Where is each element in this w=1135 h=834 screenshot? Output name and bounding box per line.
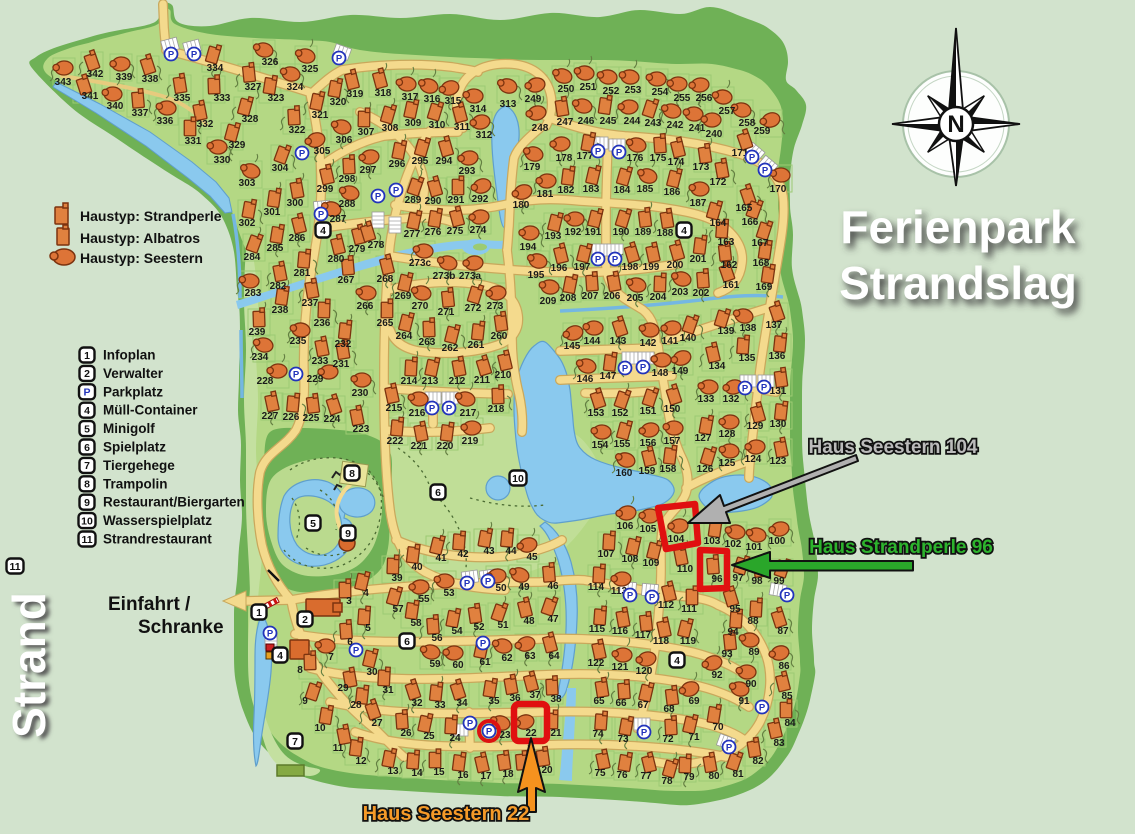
svg-text:257: 257 [719,106,736,117]
svg-text:41: 41 [435,553,447,564]
svg-text:86: 86 [778,661,790,672]
svg-text:P: P [429,404,436,415]
svg-text:157: 157 [664,436,681,447]
svg-text:264: 264 [396,331,413,342]
svg-text:75: 75 [594,768,606,779]
svg-text:176: 176 [627,153,644,164]
svg-text:91: 91 [738,696,750,707]
svg-text:165: 165 [736,203,753,214]
svg-text:61: 61 [479,657,491,668]
svg-text:52: 52 [473,622,485,633]
svg-text:119: 119 [680,636,697,647]
svg-text:234: 234 [252,352,269,363]
svg-text:P: P [749,153,756,164]
svg-text:Infoplan: Infoplan [103,348,156,363]
svg-text:109: 109 [643,558,660,569]
svg-text:P: P [393,186,400,197]
svg-text:111: 111 [681,604,697,615]
svg-text:4: 4 [277,650,283,662]
svg-text:31: 31 [382,685,394,696]
svg-text:212: 212 [449,376,466,387]
svg-text:295: 295 [412,156,429,167]
svg-text:8: 8 [349,468,355,480]
svg-text:60: 60 [452,660,464,671]
svg-text:116: 116 [612,626,629,637]
svg-text:326: 326 [262,57,279,68]
svg-text:6: 6 [404,636,410,648]
svg-text:80: 80 [708,771,720,782]
svg-text:150: 150 [664,404,681,415]
svg-text:Einfahrt /: Einfahrt / [108,594,191,615]
svg-text:293: 293 [459,166,476,177]
svg-text:220: 220 [437,441,454,452]
svg-text:280: 280 [328,254,345,265]
svg-text:159: 159 [639,466,656,477]
svg-text:180: 180 [513,200,530,211]
svg-text:P: P [622,364,629,375]
svg-text:94: 94 [727,627,739,638]
svg-text:328: 328 [242,114,259,125]
svg-text:P: P [336,54,343,65]
svg-text:88: 88 [747,616,759,627]
svg-text:218: 218 [488,404,505,415]
svg-text:174: 174 [668,157,685,168]
svg-text:P: P [641,728,648,739]
svg-text:304: 304 [272,163,289,174]
svg-text:56: 56 [431,633,443,644]
svg-text:170: 170 [770,184,787,195]
svg-text:1: 1 [84,350,90,362]
svg-text:183: 183 [583,184,600,195]
svg-text:310: 310 [429,120,446,131]
svg-text:11: 11 [9,561,20,573]
svg-text:27: 27 [371,718,383,729]
svg-text:273b: 273b [433,271,456,282]
svg-text:7: 7 [292,736,298,748]
svg-text:305: 305 [314,146,331,157]
svg-text:259: 259 [754,126,771,137]
svg-text:P: P [353,646,360,657]
svg-text:49: 49 [518,582,530,593]
svg-text:256: 256 [696,93,713,104]
svg-text:13: 13 [387,766,399,777]
svg-text:222: 222 [387,436,404,447]
svg-text:70: 70 [712,722,724,733]
svg-text:250: 250 [558,84,575,95]
svg-text:290: 290 [425,196,442,207]
svg-text:10: 10 [512,473,524,485]
svg-text:106: 106 [617,521,634,532]
svg-text:P: P [83,387,90,399]
svg-text:48: 48 [523,616,535,627]
svg-text:146: 146 [577,374,594,385]
svg-text:P: P [726,743,733,754]
svg-text:186: 186 [664,187,681,198]
svg-text:225: 225 [303,413,320,424]
svg-text:Haustyp: Seestern: Haustyp: Seestern [80,250,203,266]
svg-text:35: 35 [488,696,500,707]
svg-text:26: 26 [400,728,412,739]
svg-text:76: 76 [616,770,628,781]
svg-text:Müll-Container: Müll-Container [103,403,198,418]
svg-text:282: 282 [270,281,287,292]
svg-text:Spielplatz: Spielplatz [103,440,166,455]
svg-text:11: 11 [333,743,344,754]
svg-text:275: 275 [447,226,464,237]
svg-text:187: 187 [690,198,707,209]
svg-text:194: 194 [520,242,537,253]
svg-text:45: 45 [526,552,538,563]
svg-text:136: 136 [769,351,786,362]
svg-text:291: 291 [448,195,465,206]
svg-text:284: 284 [244,252,261,263]
svg-text:232: 232 [335,339,352,350]
svg-text:266: 266 [357,301,374,312]
svg-text:307: 307 [358,127,375,138]
svg-text:Minigolf: Minigolf [103,421,155,436]
svg-text:272: 272 [465,303,482,314]
svg-text:337: 337 [132,108,149,119]
svg-text:289: 289 [405,195,422,206]
svg-text:154: 154 [592,440,609,451]
svg-text:92: 92 [711,670,723,681]
svg-text:341: 341 [82,91,99,102]
svg-text:118: 118 [653,636,670,647]
svg-text:325: 325 [302,64,319,75]
svg-text:18: 18 [502,769,514,780]
svg-text:211: 211 [474,375,491,386]
svg-text:277: 277 [404,229,421,240]
svg-text:267: 267 [338,275,355,286]
svg-text:117: 117 [635,630,652,641]
svg-text:54: 54 [451,626,463,637]
svg-text:5: 5 [365,623,371,634]
svg-text:276: 276 [425,227,442,238]
svg-text:90: 90 [745,679,757,690]
svg-text:320: 320 [330,97,347,108]
svg-text:189: 189 [635,227,652,238]
svg-text:130: 130 [770,419,787,430]
svg-text:Verwalter: Verwalter [103,366,164,381]
svg-text:233: 233 [312,356,329,367]
svg-text:Strandslag: Strandslag [839,257,1077,309]
svg-text:21: 21 [550,728,562,739]
svg-text:P: P [595,255,602,266]
svg-text:85: 85 [781,691,793,702]
svg-text:285: 285 [267,243,284,254]
svg-text:273: 273 [487,301,504,312]
svg-text:336: 336 [157,116,174,127]
svg-text:298: 298 [339,174,356,185]
svg-text:190: 190 [613,227,630,238]
svg-text:14: 14 [411,768,423,779]
svg-text:184: 184 [614,185,631,196]
svg-text:239: 239 [249,327,266,338]
svg-text:236: 236 [314,318,331,329]
svg-text:331: 331 [185,136,202,147]
svg-text:84: 84 [784,718,796,729]
svg-text:73: 73 [617,734,629,745]
svg-text:287: 287 [330,214,347,225]
svg-text:121: 121 [612,662,629,673]
svg-text:334: 334 [207,63,224,74]
svg-text:209: 209 [540,296,557,307]
svg-text:278: 278 [368,240,385,251]
svg-text:8: 8 [84,479,90,491]
svg-text:243: 243 [645,118,662,129]
svg-text:330: 330 [214,155,231,166]
svg-text:P: P [784,591,791,602]
svg-text:327: 327 [245,82,262,93]
svg-text:110: 110 [677,564,694,575]
svg-text:143: 143 [610,336,627,347]
svg-text:72: 72 [662,734,674,745]
svg-text:108: 108 [622,554,639,565]
svg-text:Wasserspielplatz: Wasserspielplatz [103,513,212,528]
svg-text:78: 78 [661,776,673,787]
svg-text:Strandrestaurant: Strandrestaurant [103,532,212,547]
svg-text:12: 12 [355,756,367,767]
svg-text:62: 62 [501,653,513,664]
svg-text:2: 2 [302,614,308,626]
svg-text:34: 34 [456,698,468,709]
svg-text:144: 144 [584,336,601,347]
svg-text:Strand: Strand [3,592,55,738]
svg-text:261: 261 [468,340,485,351]
svg-text:65: 65 [593,696,605,707]
svg-text:57: 57 [392,604,404,615]
svg-text:163: 163 [718,237,735,248]
svg-text:Tiergehege: Tiergehege [103,458,175,473]
svg-text:192: 192 [565,227,582,238]
svg-text:97: 97 [732,573,744,584]
svg-text:Restaurant/Biergarten: Restaurant/Biergarten [103,495,245,510]
svg-text:312: 312 [476,130,493,141]
svg-text:269: 269 [395,291,412,302]
svg-text:4: 4 [320,225,326,237]
svg-text:247: 247 [557,117,574,128]
svg-text:10: 10 [81,515,93,527]
svg-text:338: 338 [142,74,159,85]
svg-text:179: 179 [524,162,541,173]
svg-text:306: 306 [336,135,353,146]
svg-text:230: 230 [352,388,369,399]
svg-text:38: 38 [550,694,562,705]
svg-text:64: 64 [548,651,560,662]
svg-text:79: 79 [683,772,695,783]
svg-text:145: 145 [564,341,581,352]
svg-text:164: 164 [710,218,727,229]
svg-text:273a: 273a [459,271,482,282]
svg-text:316: 316 [424,94,441,105]
svg-text:242: 242 [667,120,684,131]
svg-text:262: 262 [442,343,459,354]
svg-text:213: 213 [422,376,439,387]
svg-text:169: 169 [756,282,773,293]
svg-text:253: 253 [625,85,642,96]
svg-text:P: P [485,577,492,588]
svg-text:223: 223 [353,424,370,435]
svg-text:221: 221 [411,441,428,452]
svg-text:172: 172 [710,177,727,188]
svg-text:251: 251 [580,82,597,93]
svg-text:123: 123 [770,456,787,467]
svg-text:P: P [168,50,175,61]
svg-text:105: 105 [640,524,657,535]
svg-text:53: 53 [443,588,455,599]
svg-text:274: 274 [470,225,487,236]
svg-text:15: 15 [433,767,445,778]
svg-text:162: 162 [721,260,738,271]
svg-text:4: 4 [681,225,687,237]
svg-text:10: 10 [314,723,326,734]
svg-text:263: 263 [419,337,436,348]
svg-text:185: 185 [637,184,654,195]
svg-text:47: 47 [547,614,559,625]
svg-text:245: 245 [600,116,617,127]
svg-text:58: 58 [410,618,422,629]
svg-text:Ferienpark: Ferienpark [840,201,1076,253]
svg-text:1: 1 [256,607,262,619]
svg-text:191: 191 [585,227,602,238]
svg-text:201: 201 [690,254,707,265]
svg-text:124: 124 [745,454,762,465]
svg-text:283: 283 [245,288,262,299]
svg-text:215: 215 [386,403,403,414]
svg-text:120: 120 [636,666,653,677]
svg-text:217: 217 [460,408,477,419]
svg-text:P: P [375,192,382,203]
svg-text:214: 214 [401,376,418,387]
svg-text:81: 81 [732,769,744,780]
svg-text:318: 318 [375,88,392,99]
svg-text:300: 300 [287,198,304,209]
svg-text:93: 93 [721,649,733,660]
svg-text:66: 66 [615,698,627,709]
svg-text:182: 182 [558,185,575,196]
svg-text:294: 294 [436,156,453,167]
svg-text:203: 203 [672,287,689,298]
svg-text:4: 4 [84,405,90,417]
svg-text:8: 8 [297,665,303,676]
svg-text:23: 23 [499,730,511,741]
svg-text:195: 195 [528,270,545,281]
svg-text:42: 42 [457,549,469,560]
svg-text:89: 89 [748,647,760,658]
svg-text:77: 77 [640,771,652,782]
svg-text:309: 309 [405,118,422,129]
svg-text:279: 279 [349,244,366,255]
svg-text:Haustyp: Albatros: Haustyp: Albatros [80,230,200,246]
svg-text:46: 46 [547,581,559,592]
svg-text:50: 50 [495,583,507,594]
svg-text:28: 28 [350,700,362,711]
svg-text:231: 231 [333,359,350,370]
svg-text:P: P [446,404,453,415]
svg-text:135: 135 [739,353,756,364]
svg-text:Haustyp: Strandperle: Haustyp: Strandperle [80,208,222,224]
svg-text:339: 339 [116,72,133,83]
svg-text:P: P [267,629,274,640]
svg-text:219: 219 [462,436,479,447]
svg-text:P: P [595,147,602,158]
svg-text:P: P [293,370,300,381]
svg-text:29: 29 [337,683,349,694]
svg-text:5: 5 [310,518,316,530]
svg-text:315: 315 [445,96,462,107]
svg-text:Schranke: Schranke [138,617,224,638]
svg-text:199: 199 [643,262,660,273]
svg-text:63: 63 [524,651,536,662]
svg-text:314: 314 [470,104,487,115]
svg-text:P: P [627,591,634,602]
svg-text:N: N [947,111,964,138]
svg-text:128: 128 [719,429,736,440]
svg-text:286: 286 [289,233,306,244]
svg-text:149: 149 [672,366,689,377]
svg-text:333: 333 [214,93,231,104]
svg-text:30: 30 [366,667,378,678]
svg-text:329: 329 [229,140,246,151]
svg-text:265: 265 [377,318,394,329]
svg-text:158: 158 [660,464,677,475]
svg-text:188: 188 [657,228,674,239]
svg-text:335: 335 [174,93,191,104]
svg-text:P: P [464,579,471,590]
svg-text:P: P [191,50,198,61]
svg-text:216: 216 [409,408,426,419]
svg-text:59: 59 [429,659,441,670]
svg-text:P: P [640,363,647,374]
svg-text:240: 240 [706,129,723,140]
svg-text:32: 32 [411,698,423,709]
svg-text:139: 139 [718,326,735,337]
svg-text:33: 33 [434,700,446,711]
svg-text:138: 138 [740,323,757,334]
svg-text:9: 9 [84,497,90,509]
svg-text:173: 173 [693,162,710,173]
svg-text:112: 112 [658,600,675,611]
svg-text:96: 96 [711,574,723,585]
svg-text:248: 248 [532,123,549,134]
svg-text:246: 246 [578,116,595,127]
svg-text:Parkplatz: Parkplatz [103,384,163,399]
svg-text:260: 260 [491,331,508,342]
svg-text:107: 107 [598,549,615,560]
svg-text:7: 7 [328,652,334,663]
svg-text:P: P [612,255,619,266]
svg-text:83: 83 [773,738,785,749]
svg-text:101: 101 [746,542,763,553]
svg-text:160: 160 [616,468,633,479]
svg-text:24: 24 [449,733,461,744]
svg-text:Haus Strandperle 96: Haus Strandperle 96 [809,537,993,558]
svg-text:303: 303 [239,178,256,189]
svg-text:43: 43 [483,546,495,557]
svg-text:99: 99 [773,576,785,587]
svg-text:229: 229 [307,374,324,385]
svg-text:P: P [742,384,749,395]
svg-text:Haus Seestern 22: Haus Seestern 22 [363,803,530,825]
svg-text:342: 342 [87,69,104,80]
svg-text:297: 297 [360,165,377,176]
svg-text:254: 254 [652,87,669,98]
svg-text:332: 332 [197,119,214,130]
svg-text:100: 100 [769,536,786,547]
svg-text:P: P [616,148,623,159]
svg-text:55: 55 [418,594,430,605]
svg-text:323: 323 [268,93,285,104]
